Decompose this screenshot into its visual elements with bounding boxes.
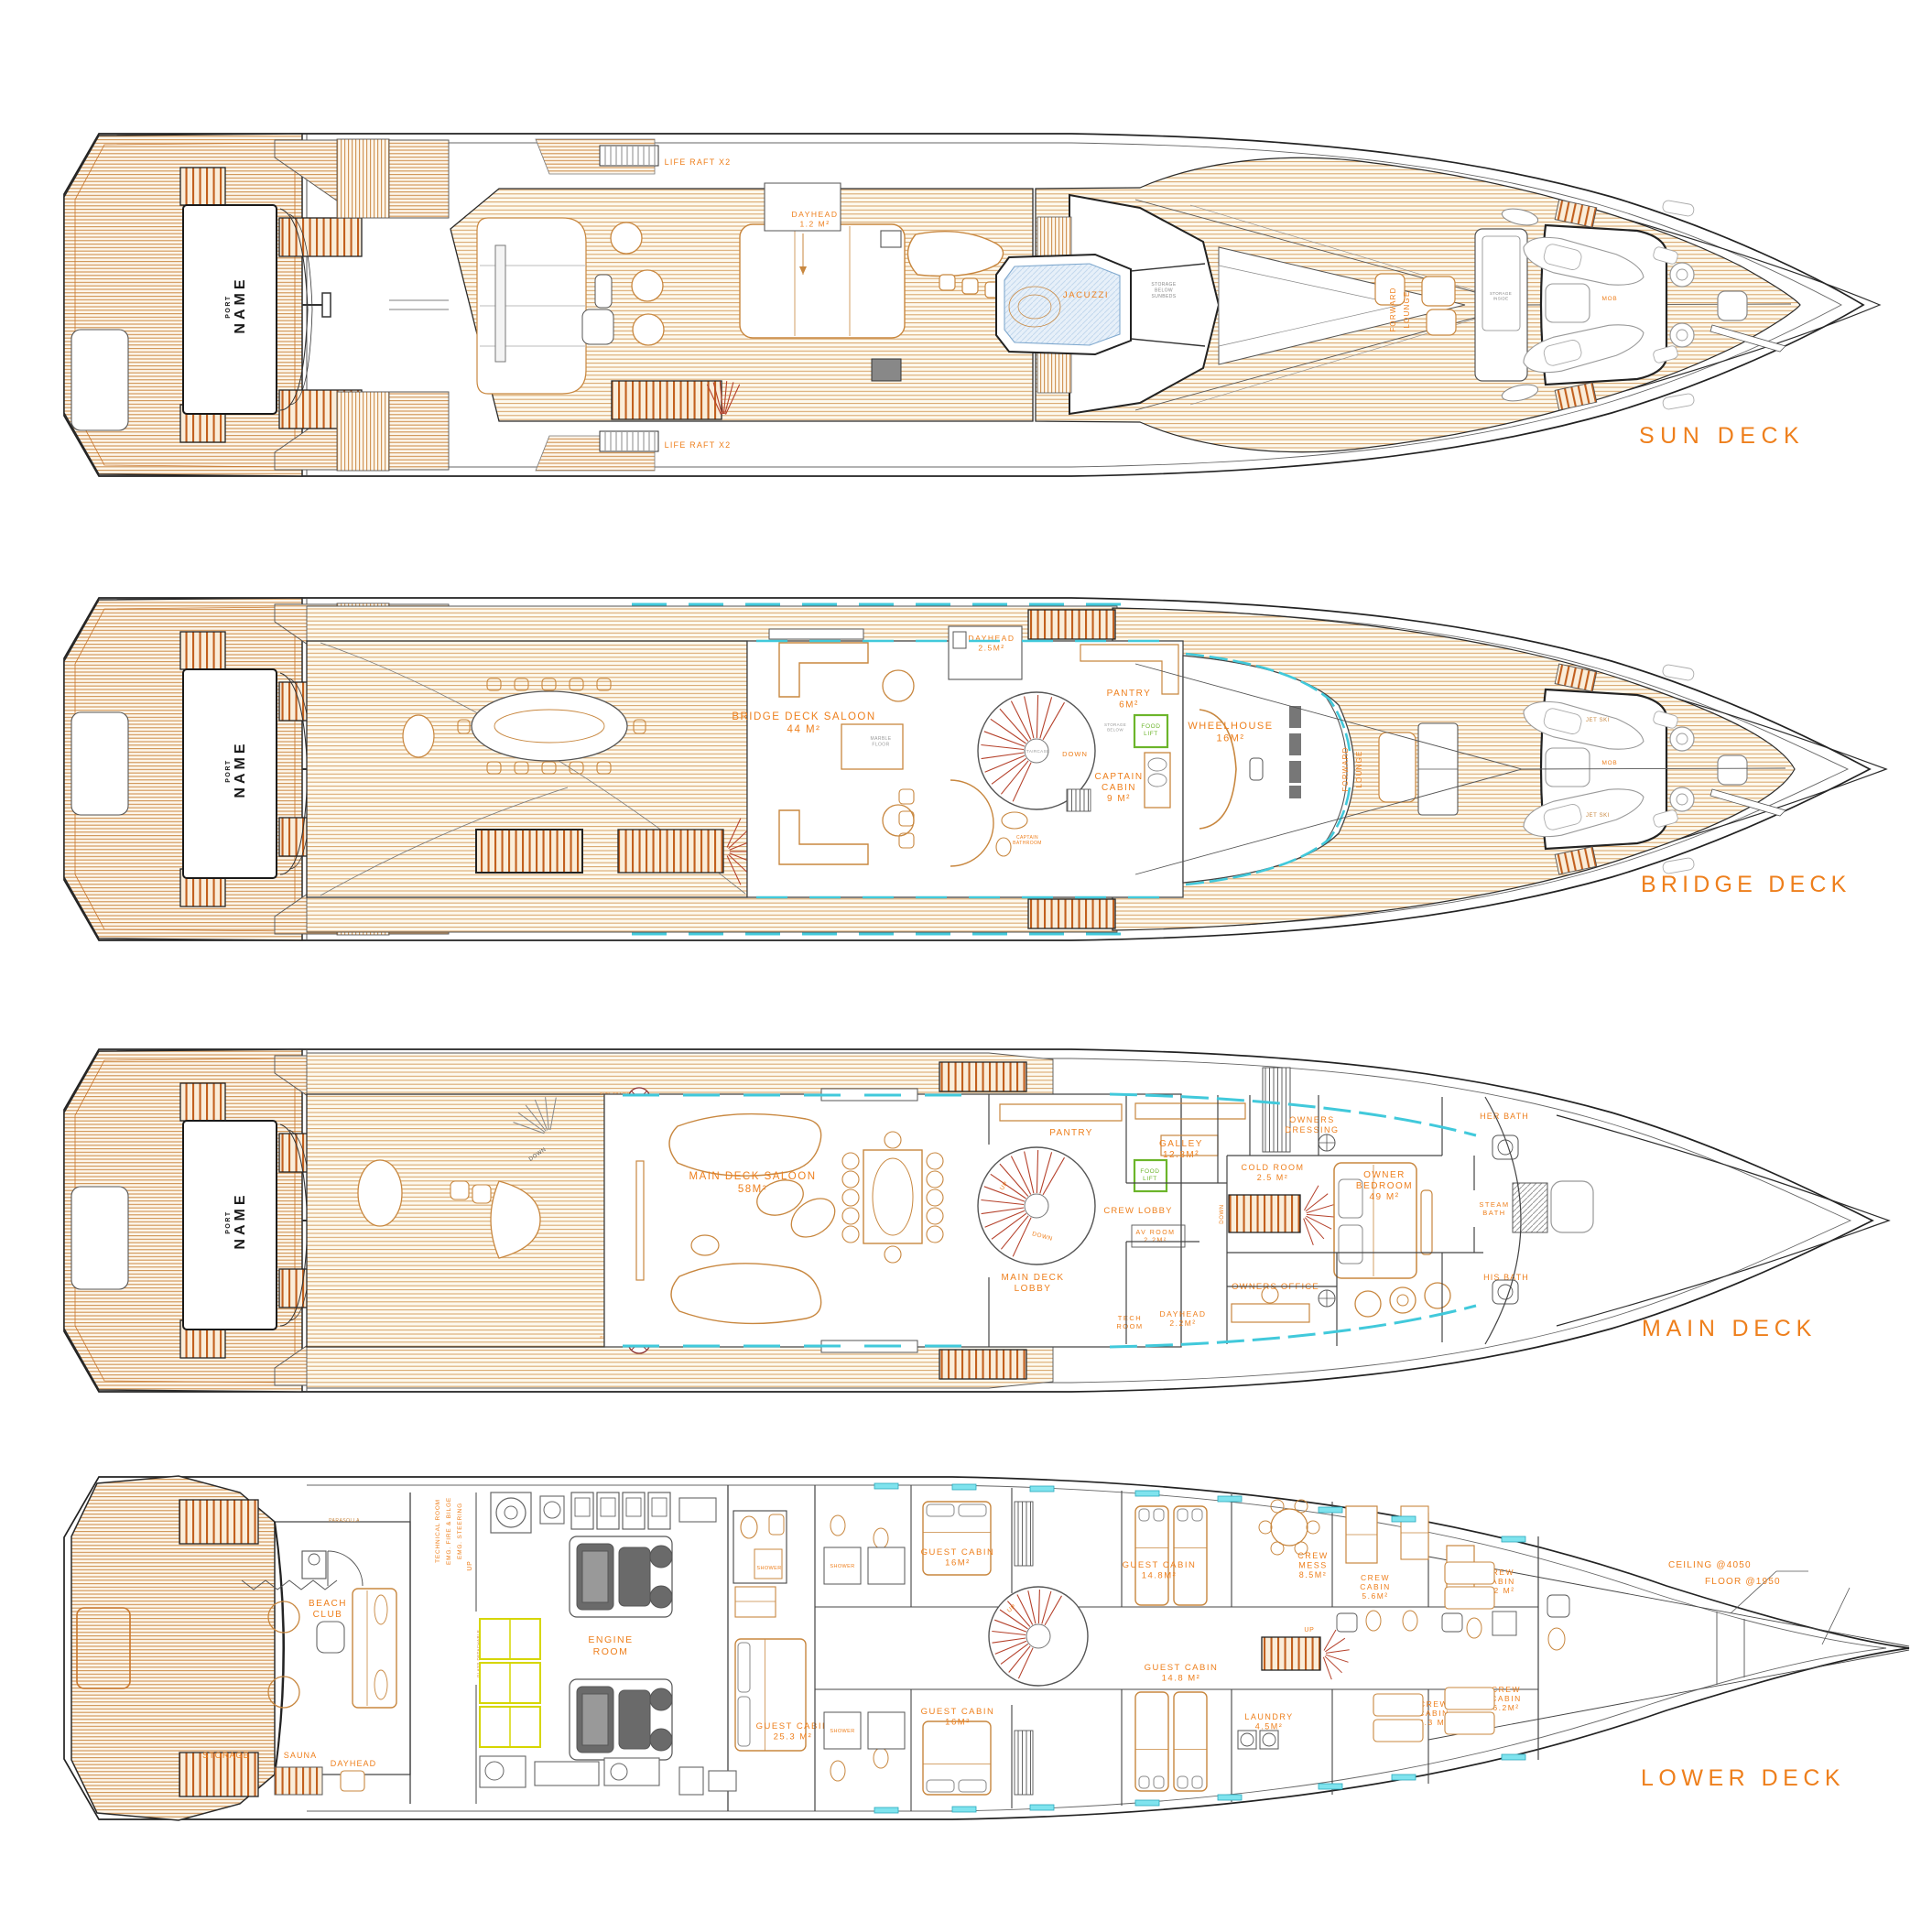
svg-text:ENGINE: ENGINE <box>588 1634 633 1645</box>
svg-text:STORAGE: STORAGE <box>1490 291 1512 296</box>
svg-text:MOB: MOB <box>1602 296 1618 302</box>
svg-text:DAYHEAD: DAYHEAD <box>331 1759 377 1768</box>
svg-text:5.6M²: 5.6M² <box>1362 1591 1388 1601</box>
svg-text:LOUNGE: LOUNGE <box>1403 291 1411 329</box>
svg-text:1.2 M²: 1.2 M² <box>799 220 830 229</box>
svg-text:MESS: MESS <box>1298 1561 1328 1570</box>
svg-text:14.8 M²: 14.8 M² <box>1162 1674 1201 1684</box>
svg-text:58M²: 58M² <box>738 1184 767 1195</box>
svg-text:MAIN DECK: MAIN DECK <box>1642 1316 1817 1341</box>
svg-text:2.2M²: 2.2M² <box>1169 1319 1196 1328</box>
svg-text:TECHNICAL ROOM: TECHNICAL ROOM <box>435 1499 441 1563</box>
svg-text:GALLEY: GALLEY <box>1159 1139 1203 1149</box>
svg-text:LIFE RAFT X2: LIFE RAFT X2 <box>665 440 732 450</box>
svg-text:FOOD: FOOD <box>1141 723 1160 730</box>
svg-text:GUEST CABIN: GUEST CABIN <box>921 1547 995 1558</box>
svg-text:GUEST CABIN: GUEST CABIN <box>756 1721 830 1731</box>
svg-text:NAME: NAME <box>233 1191 248 1249</box>
svg-text:TECH: TECH <box>1118 1314 1142 1322</box>
svg-text:LIFE RAFT X2: LIFE RAFT X2 <box>665 157 732 167</box>
svg-text:MAIN DECK: MAIN DECK <box>1001 1273 1064 1283</box>
svg-text:16M²: 16M² <box>945 1718 971 1728</box>
svg-text:BELOW: BELOW <box>1107 728 1123 733</box>
svg-text:PORT: PORT <box>225 759 232 782</box>
svg-text:DRESSING: DRESSING <box>1285 1125 1339 1134</box>
svg-text:16M²: 16M² <box>1216 733 1244 744</box>
svg-text:6.2M²: 6.2M² <box>1492 1703 1519 1712</box>
svg-text:4.5M²: 4.5M² <box>1255 1722 1284 1731</box>
svg-text:PORT: PORT <box>225 1210 232 1233</box>
svg-text:LOUNGE: LOUNGE <box>1355 751 1363 788</box>
svg-text:BEACH: BEACH <box>309 1599 347 1609</box>
svg-text:JACUZZI: JACUZZI <box>1063 290 1109 300</box>
svg-text:SUNBEDS: SUNBEDS <box>1152 294 1177 299</box>
svg-text:CREW: CREW <box>1492 1685 1521 1694</box>
svg-text:14.8M²: 14.8M² <box>1142 1571 1178 1581</box>
svg-text:MARBLE: MARBLE <box>871 736 892 742</box>
svg-text:OWNERS: OWNERS <box>1289 1115 1335 1124</box>
svg-text:FOOD: FOOD <box>1140 1168 1159 1175</box>
svg-text:AV ROOM: AV ROOM <box>1135 1230 1175 1236</box>
svg-text:FLOOR: FLOOR <box>872 743 889 748</box>
svg-text:STORAGE: STORAGE <box>1151 282 1176 288</box>
svg-text:9 M²: 9 M² <box>1107 794 1131 804</box>
svg-text:2.5 M²: 2.5 M² <box>1257 1173 1289 1182</box>
svg-text:STEAM: STEAM <box>1479 1200 1509 1209</box>
svg-text:UP: UP <box>467 1560 473 1570</box>
svg-text:DAYHEAD: DAYHEAD <box>1160 1309 1207 1319</box>
svg-text:SUN DECK: SUN DECK <box>1639 423 1805 449</box>
svg-text:CREW LOBBY: CREW LOBBY <box>1103 1206 1172 1216</box>
svg-text:EMG. STEERING: EMG. STEERING <box>457 1503 463 1559</box>
svg-text:CABIN: CABIN <box>1102 783 1136 793</box>
svg-text:JET SKI: JET SKI <box>1586 813 1610 819</box>
svg-text:BRIDGE DECK: BRIDGE DECK <box>1641 872 1851 897</box>
svg-text:25.3 M²: 25.3 M² <box>774 1732 813 1742</box>
svg-text:CEILING @4050: CEILING @4050 <box>1668 1560 1752 1570</box>
svg-text:UP: UP <box>1304 1627 1314 1634</box>
svg-text:SHOWER: SHOWER <box>756 1566 781 1571</box>
svg-text:LIFT: LIFT <box>1143 1176 1157 1182</box>
svg-text:PARASOLLA: PARASOLLA <box>329 1518 360 1524</box>
svg-text:BATH: BATH <box>1482 1209 1505 1217</box>
svg-text:COLD ROOM: COLD ROOM <box>1241 1163 1304 1172</box>
svg-text:CREW: CREW <box>1297 1551 1329 1560</box>
svg-text:BELOW: BELOW <box>1155 288 1173 294</box>
svg-text:SAUNA: SAUNA <box>284 1751 318 1760</box>
svg-text:ROOM: ROOM <box>1116 1322 1143 1330</box>
svg-text:2.5M²: 2.5M² <box>978 644 1004 653</box>
svg-text:NAME: NAME <box>233 740 248 798</box>
svg-text:FORWARD: FORWARD <box>1389 287 1397 331</box>
svg-text:8.5M²: 8.5M² <box>1299 1570 1328 1579</box>
svg-text:DAYHEAD: DAYHEAD <box>792 210 839 219</box>
svg-text:LOBBY: LOBBY <box>1015 1284 1052 1294</box>
svg-text:INSIDE: INSIDE <box>1493 297 1509 301</box>
svg-text:6M²: 6M² <box>1119 700 1139 711</box>
svg-text:SHOWER: SHOWER <box>830 1729 854 1734</box>
svg-text:GUEST CABIN: GUEST CABIN <box>1145 1663 1219 1673</box>
svg-text:EMG. FIRE & BILGE: EMG. FIRE & BILGE <box>446 1497 452 1565</box>
svg-text:STORAGE: STORAGE <box>202 1751 250 1760</box>
svg-text:FLOOR @1950: FLOOR @1950 <box>1705 1577 1781 1587</box>
svg-text:GUEST CABIN: GUEST CABIN <box>921 1707 995 1717</box>
svg-text:PORT: PORT <box>225 295 232 318</box>
svg-text:CABIN: CABIN <box>1491 1694 1521 1703</box>
svg-text:ROOM: ROOM <box>593 1646 629 1657</box>
svg-text:PANTRY: PANTRY <box>1049 1128 1092 1138</box>
svg-text:PANTRY: PANTRY <box>1107 689 1152 699</box>
svg-text:SHOWER: SHOWER <box>830 1564 854 1569</box>
svg-text:BEDROOM: BEDROOM <box>1356 1181 1413 1191</box>
svg-text:CLUB: CLUB <box>313 1610 343 1620</box>
svg-text:CREW: CREW <box>1419 1699 1449 1709</box>
svg-text:OWNER: OWNER <box>1363 1170 1406 1180</box>
svg-text:BRIDGE DECK SALOON: BRIDGE DECK SALOON <box>732 711 875 722</box>
svg-text:BATHROOM: BATHROOM <box>1013 841 1042 846</box>
svg-text:CREW: CREW <box>1361 1573 1390 1582</box>
svg-text:NAME: NAME <box>233 276 248 333</box>
svg-text:HER BATH: HER BATH <box>1480 1112 1529 1121</box>
svg-text:JET SKI: JET SKI <box>1586 718 1610 723</box>
svg-text:DOWN: DOWN <box>1220 1204 1225 1223</box>
svg-text:DOWN: DOWN <box>1062 750 1088 758</box>
svg-text:12.8M²: 12.8M² <box>1163 1150 1199 1160</box>
svg-text:LAUNDRY: LAUNDRY <box>1244 1712 1293 1721</box>
svg-text:MAIN DECK SALOON: MAIN DECK SALOON <box>689 1171 816 1182</box>
svg-text:MOB: MOB <box>1602 760 1618 766</box>
svg-text:49 M²: 49 M² <box>1369 1192 1399 1202</box>
svg-text:44 M²: 44 M² <box>787 724 821 735</box>
svg-text:FORWARD: FORWARD <box>1341 746 1350 791</box>
svg-text:STAIRCASE: STAIRCASE <box>1024 749 1050 754</box>
svg-text:2.2M²: 2.2M² <box>1144 1238 1167 1244</box>
svg-text:CAPTAIN: CAPTAIN <box>1094 772 1143 782</box>
svg-text:LOWER DECK: LOWER DECK <box>1641 1765 1845 1791</box>
svg-text:CABIN: CABIN <box>1360 1582 1390 1591</box>
svg-text:WHEELHOUSE: WHEELHOUSE <box>1188 721 1273 732</box>
svg-text:STORAGE: STORAGE <box>1104 722 1126 727</box>
svg-text:GUEST CABIN: GUEST CABIN <box>1123 1560 1197 1570</box>
svg-text:16M²: 16M² <box>945 1558 971 1568</box>
svg-text:LIFT: LIFT <box>1144 731 1158 737</box>
